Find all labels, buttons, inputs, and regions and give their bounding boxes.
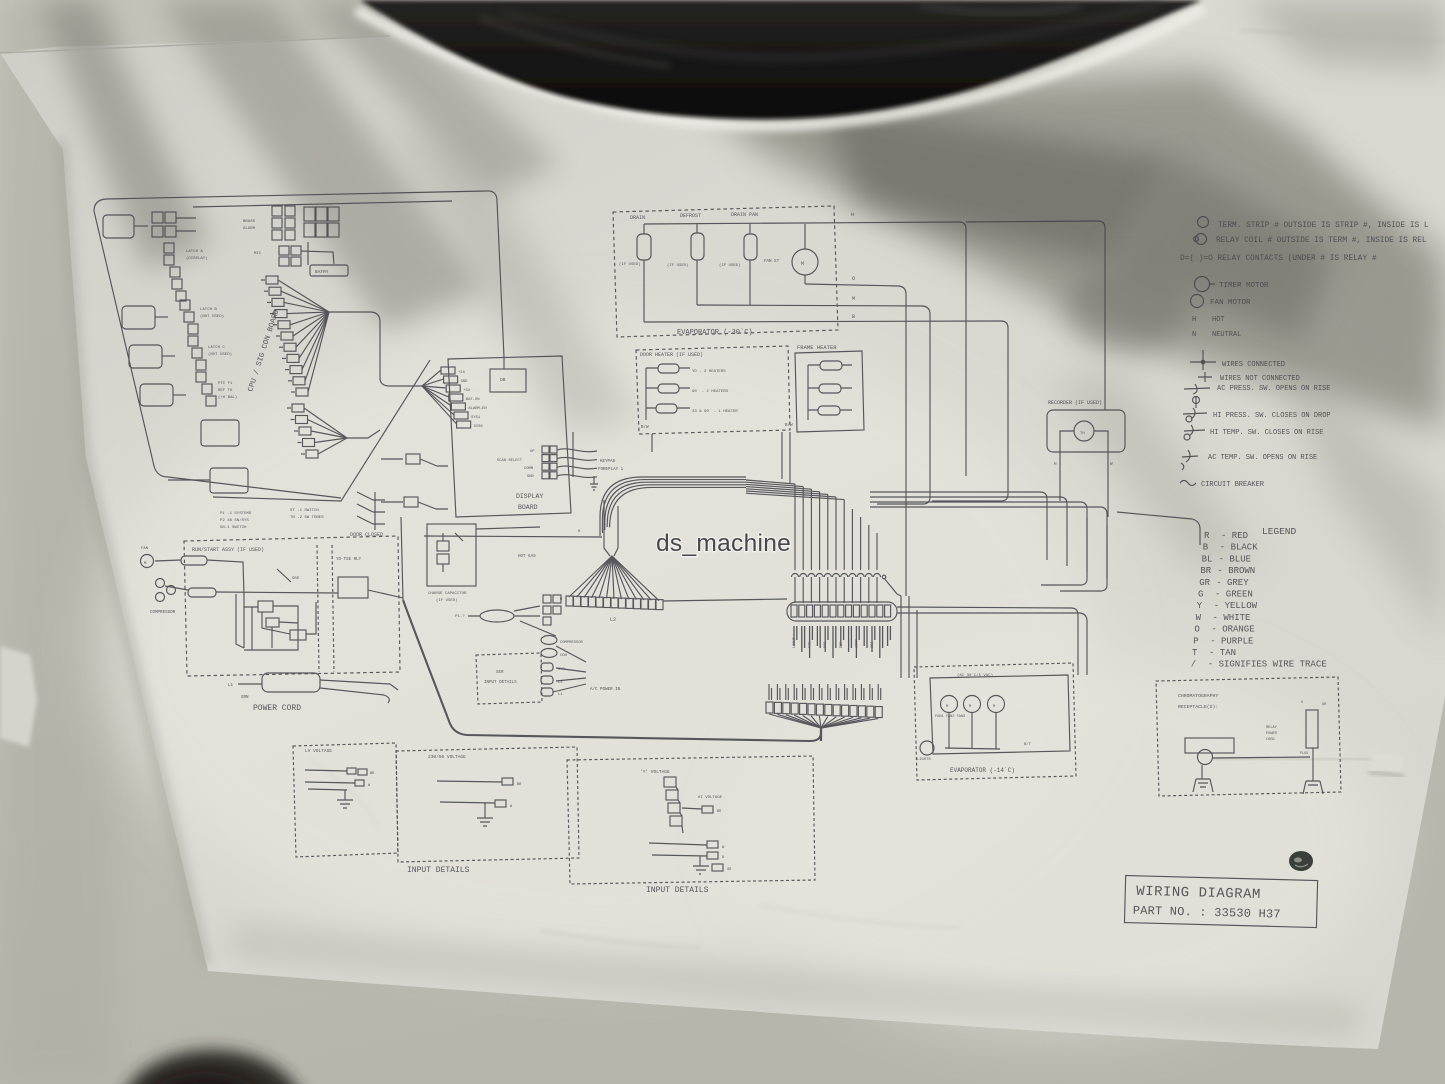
svg-text:LIGHT: LIGHT: [793, 636, 797, 648]
svg-text:INPUT DETAILS: INPUT DETAILS: [646, 886, 709, 895]
svg-text:N: N: [1192, 331, 1196, 339]
svg-text:PTC F1: PTC F1: [218, 382, 233, 386]
svg-text:COMPRESSOR: COMPRESSOR: [150, 611, 176, 615]
svg-text:230/50 VOLTAGE: 230/50 VOLTAGE: [428, 754, 466, 760]
svg-text:FRAME HEATER: FRAME HEATER: [797, 344, 837, 351]
svg-text:ST -1 SWITCH: ST -1 SWITCH: [290, 509, 319, 513]
svg-text:AC TEMP. SW. OPENS ON RISE: AC TEMP. SW. OPENS ON RISE: [1208, 454, 1317, 462]
svg-text:LV VOLTAGE: LV VOLTAGE: [305, 748, 332, 754]
svg-text:DB: DB: [500, 377, 506, 383]
svg-text:WIRES CONNECTED: WIRES CONNECTED: [1222, 361, 1285, 369]
svg-text:CIRCUIT BREAKER: CIRCUIT BREAKER: [1201, 481, 1265, 489]
svg-text:L1: L1: [558, 693, 563, 697]
svg-text:W: W: [1196, 613, 1202, 623]
svg-text:(IF USED): (IF USED): [436, 598, 458, 603]
svg-text:RECORDER (IF USED): RECORDER (IF USED): [1048, 400, 1102, 406]
svg-text:(NOT USED): (NOT USED): [208, 352, 232, 357]
svg-text:- SIGNIFIES WIRE TRACE: - SIGNIFIES WIRE TRACE: [1208, 660, 1327, 670]
svg-text:LIGHTS: LIGHTS: [917, 758, 931, 762]
svg-text:- GREEN: - GREEN: [1215, 590, 1253, 600]
svg-text:MIC: MIC: [254, 252, 262, 256]
svg-text:B/T: B/T: [1024, 742, 1032, 747]
svg-text:- BLACK: - BLACK: [1220, 543, 1258, 553]
svg-text:HI VOLTAGE: HI VOLTAGE: [698, 796, 723, 800]
svg-text:ALARM-EN: ALARM-EN: [468, 407, 486, 411]
svg-text:UP: UP: [530, 450, 535, 454]
svg-text:COMP: COMP: [855, 639, 859, 648]
svg-text:- BLUE: - BLUE: [1219, 554, 1251, 564]
svg-text:CHROMATOGRAPHY: CHROMATOGRAPHY: [1178, 693, 1218, 699]
svg-text:WIRES NOT CONNECTED: WIRES NOT CONNECTED: [1220, 375, 1300, 383]
svg-text:L2: L2: [610, 617, 616, 623]
svg-text:HOT: HOT: [1212, 316, 1225, 324]
svg-text:Y: Y: [1197, 601, 1203, 611]
svg-text:P: P: [1193, 636, 1198, 646]
svg-text:L1: L1: [228, 684, 234, 688]
svg-text:A/C POWER IN: A/C POWER IN: [590, 687, 621, 692]
svg-text:BRASS: BRASS: [243, 220, 256, 224]
svg-text:/: /: [1191, 660, 1196, 670]
svg-text:DRAIN PAN: DRAIN PAN: [731, 212, 758, 218]
svg-text:FOREPLAY 1: FOREPLAY 1: [598, 468, 624, 472]
svg-text:BOARD: BOARD: [518, 504, 538, 511]
svg-text:INPUT DETAILS: INPUT DETAILS: [407, 866, 470, 875]
svg-text:- RED: - RED: [1221, 531, 1248, 541]
svg-text:- TAN: - TAN: [1209, 648, 1236, 658]
svg-text:LATCH C: LATCH C: [208, 346, 225, 350]
svg-text:LEGEND: LEGEND: [1262, 526, 1297, 537]
svg-text:M: M: [969, 705, 971, 709]
svg-text:- GREY: - GREY: [1216, 578, 1249, 588]
svg-text:FAN: FAN: [141, 547, 149, 551]
svg-text:DEFROST: DEFROST: [680, 213, 701, 219]
svg-text:FAN MOTOR: FAN MOTOR: [1210, 299, 1251, 307]
svg-text:ds_machine: ds_machine: [656, 530, 791, 557]
svg-text:GN-1 SWITCH: GN-1 SWITCH: [220, 526, 247, 530]
svg-text:COMM: COMM: [524, 467, 534, 471]
svg-text:KEYPAD: KEYPAD: [600, 460, 616, 464]
svg-text:SER: SER: [496, 671, 504, 675]
svg-text:COMPRESSOR: COMPRESSOR: [560, 641, 584, 645]
svg-text:YD-TGE RLY: YD-TGE RLY: [336, 558, 362, 562]
svg-text:SYS1: SYS1: [471, 416, 481, 420]
svg-text:(NOT USED): (NOT USED): [200, 314, 224, 319]
svg-text:+5V: +5V: [463, 389, 471, 393]
svg-text:- PURPLE: - PURPLE: [1210, 636, 1253, 646]
svg-text:BATRY: BATRY: [315, 269, 329, 275]
svg-text:- ORANGE: - ORANGE: [1211, 625, 1254, 635]
svg-text:- BROWN: - BROWN: [1217, 566, 1255, 576]
svg-text:G: G: [1198, 590, 1203, 600]
svg-text:POWER: POWER: [1266, 732, 1278, 736]
svg-text:EVAPORATOR (-14`C): EVAPORATOR (-14`C): [950, 767, 1015, 774]
svg-text:B: B: [1203, 543, 1209, 553]
svg-text:CHARGE CAPACITOR: CHARGE CAPACITOR: [428, 592, 467, 596]
svg-text:AC PRESS. SW. OPENS ON RISE: AC PRESS. SW. OPENS ON RISE: [1217, 385, 1330, 393]
svg-text:+24: +24: [458, 371, 466, 375]
svg-text:RELAY COIL # OUTSIDE IS TERM #: RELAY COIL # OUTSIDE IS TERM #, INSIDE I…: [1216, 237, 1427, 245]
svg-text:ALARM: ALARM: [243, 227, 256, 231]
svg-text:TERM. STRIP # OUTSIDE IS STRIP: TERM. STRIP # OUTSIDE IS STRIP #, INSIDE…: [1218, 222, 1429, 230]
svg-text:B/W: B/W: [785, 423, 793, 428]
svg-text:BR: BR: [1200, 566, 1211, 576]
svg-text:PLUG: PLUG: [1300, 752, 1308, 756]
svg-text:RUN/START ASSY (IF USED): RUN/START ASSY (IF USED): [192, 547, 264, 553]
svg-text:GRN: GRN: [241, 696, 249, 700]
svg-text:CORD: CORD: [1266, 738, 1275, 742]
svg-text:P1 -1 SYSTEMS: P1 -1 SYSTEMS: [220, 512, 252, 516]
svg-text:DOOR HEATER (IF USED): DOOR HEATER (IF USED): [640, 352, 703, 358]
svg-text:(DISPLAY): (DISPLAY): [186, 256, 208, 261]
svg-text:L2: L2: [558, 681, 563, 685]
svg-text:(IF USED): (IF USED): [619, 262, 641, 267]
svg-text:GR: GR: [1199, 578, 1210, 588]
svg-text:90` - 2 HEATERS: 90` - 2 HEATERS: [692, 389, 729, 394]
svg-text:BAT-ON: BAT-ON: [466, 398, 480, 402]
svg-text:LATCH B: LATCH B: [200, 308, 217, 312]
svg-text:DISPLAY: DISPLAY: [516, 493, 543, 500]
svg-text:DEF: DEF: [840, 642, 844, 648]
svg-text:DPR: DPR: [824, 641, 828, 648]
svg-text:23 & 90` - 1 HEATER: 23 & 90` - 1 HEATER: [692, 409, 738, 414]
svg-text:M: M: [852, 296, 855, 302]
svg-text:(+H BAL): (+H BAL): [218, 395, 237, 400]
svg-text:SCAN SELECT: SCAN SELECT: [497, 459, 523, 463]
svg-text:CON: CON: [560, 654, 567, 658]
svg-text:POWER CORD: POWER CORD: [253, 704, 301, 713]
svg-text:H: H: [1192, 316, 1196, 324]
svg-text:NEUTRAL: NEUTRAL: [1212, 331, 1241, 339]
svg-text:D=( )=O RELAY CONTACTS (UNDER: D=( )=O RELAY CONTACTS (UNDER # IS RELAY…: [1180, 255, 1377, 263]
svg-text:RELAY: RELAY: [1266, 726, 1278, 730]
svg-text:- WHITE: - WHITE: [1213, 613, 1251, 623]
svg-text:HGS: HGS: [871, 642, 875, 648]
svg-text:M: M: [801, 261, 804, 267]
svg-text:BL: BL: [1202, 554, 1213, 564]
svg-text:HOT GAS: HOT GAS: [518, 555, 536, 559]
svg-text:M: M: [946, 705, 948, 709]
svg-text:(IF USED): (IF USED): [667, 263, 689, 268]
svg-text:- YELLOW: - YELLOW: [1214, 601, 1258, 611]
svg-text:TH: TH: [1080, 432, 1085, 436]
svg-text:REF TK: REF TK: [218, 389, 233, 393]
svg-text:P1-?: P1-?: [455, 615, 465, 619]
svg-text:YD - 3 HEATERS: YD - 3 HEATERS: [692, 370, 726, 374]
svg-text:FAN: FAN: [809, 642, 813, 648]
svg-text:T: T: [1192, 648, 1198, 658]
svg-text:FAN S?: FAN S?: [764, 260, 780, 264]
svg-text:FAN1 FAN2 FAN3: FAN1 FAN2 FAN3: [935, 715, 965, 719]
svg-text:P2 46 SN/SYS: P2 46 SN/SYS: [220, 518, 249, 523]
svg-text:O: O: [852, 276, 855, 282]
svg-text:O: O: [1194, 625, 1199, 635]
svg-text:'Y' VOLTAGE: 'Y' VOLTAGE: [640, 769, 670, 775]
svg-text:HI TEMP. SW. CLOSES ON RISE: HI TEMP. SW. CLOSES ON RISE: [1210, 429, 1323, 437]
svg-text:TIMER MOTOR: TIMER MOTOR: [1219, 282, 1269, 290]
svg-text:U: U: [1301, 701, 1303, 705]
svg-text:GND: GND: [527, 475, 535, 479]
svg-text:RECEPTACLE(S):: RECEPTACLE(S):: [1178, 704, 1218, 710]
svg-text:(IF USED): (IF USED): [719, 263, 741, 268]
svg-text:DRAIN: DRAIN: [630, 215, 645, 221]
svg-text:R: R: [1204, 531, 1210, 541]
svg-text:INPUT DETAILS: INPUT DETAILS: [484, 681, 517, 685]
svg-text:GND: GND: [461, 380, 469, 384]
svg-text:B/W: B/W: [641, 425, 649, 430]
svg-text:M: M: [993, 705, 995, 709]
svg-text:H: H: [851, 212, 854, 218]
svg-text:SYS0: SYS0: [474, 425, 484, 429]
svg-text:EVAPORATOR (-30`C): EVAPORATOR (-30`C): [677, 329, 753, 337]
svg-text:WIRING DIAGRAM: WIRING DIAGRAM: [1136, 884, 1261, 903]
svg-text:TN -2 SW TONES: TN -2 SW TONES: [290, 516, 324, 520]
svg-text:B: B: [852, 314, 855, 320]
svg-text:GRD: GRD: [292, 577, 300, 581]
svg-text:LATCH A: LATCH A: [186, 250, 203, 254]
svg-text:HI PRESS. SW. CLOSES ON DROP: HI PRESS. SW. CLOSES ON DROP: [1213, 412, 1331, 420]
